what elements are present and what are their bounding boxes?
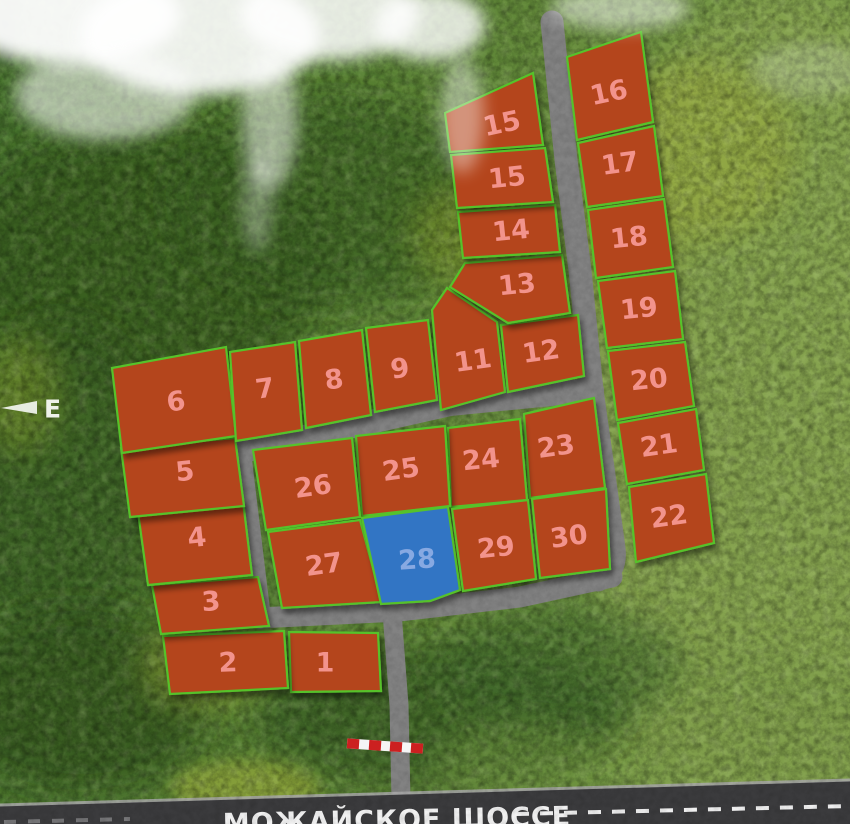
- plot-area[interactable]: [458, 205, 560, 258]
- plot-area[interactable]: [289, 632, 381, 692]
- plot-1[interactable]: 1: [289, 632, 381, 692]
- plot-area[interactable]: [524, 398, 605, 498]
- plot-20[interactable]: 20: [608, 342, 694, 420]
- plot-3[interactable]: 3: [152, 577, 269, 634]
- plot-23[interactable]: 23: [524, 398, 605, 498]
- plot-area[interactable]: [448, 419, 527, 507]
- plot-7[interactable]: 7: [230, 342, 302, 441]
- plot-2[interactable]: 2: [163, 631, 288, 694]
- plot-area[interactable]: [163, 631, 288, 694]
- plot-area[interactable]: [452, 500, 536, 591]
- plot-28[interactable]: 28: [362, 507, 460, 604]
- plot-area[interactable]: [532, 489, 610, 578]
- road-exit: [392, 612, 401, 800]
- plot-area[interactable]: [152, 577, 269, 634]
- plot-9[interactable]: 9: [366, 320, 437, 412]
- plot-24[interactable]: 24: [448, 419, 527, 507]
- land-plot-map: МОЖАЙСКОЕ ШОССЕ 123456789111213141515161…: [0, 0, 850, 824]
- plot-29[interactable]: 29: [452, 500, 536, 591]
- plot-30[interactable]: 30: [532, 489, 610, 578]
- plot-area[interactable]: [230, 342, 302, 441]
- plot-area[interactable]: [299, 330, 371, 428]
- plot-25[interactable]: 25: [356, 426, 450, 516]
- plot-area[interactable]: [362, 507, 460, 604]
- plot-26[interactable]: 26: [253, 438, 360, 530]
- plot-area[interactable]: [356, 426, 450, 516]
- plot-area[interactable]: [608, 342, 694, 420]
- plot-19[interactable]: 19: [598, 271, 683, 348]
- plot-14[interactable]: 14: [458, 205, 560, 258]
- plot-18[interactable]: 18: [588, 199, 673, 278]
- plot-area[interactable]: [253, 438, 360, 530]
- plot-area[interactable]: [366, 320, 437, 412]
- plot-21[interactable]: 21: [618, 409, 704, 484]
- plot-area[interactable]: [588, 199, 673, 278]
- plot-8[interactable]: 8: [299, 330, 371, 428]
- plot-area[interactable]: [618, 409, 704, 484]
- compass-label: E: [44, 395, 61, 424]
- plot-area[interactable]: [598, 271, 683, 348]
